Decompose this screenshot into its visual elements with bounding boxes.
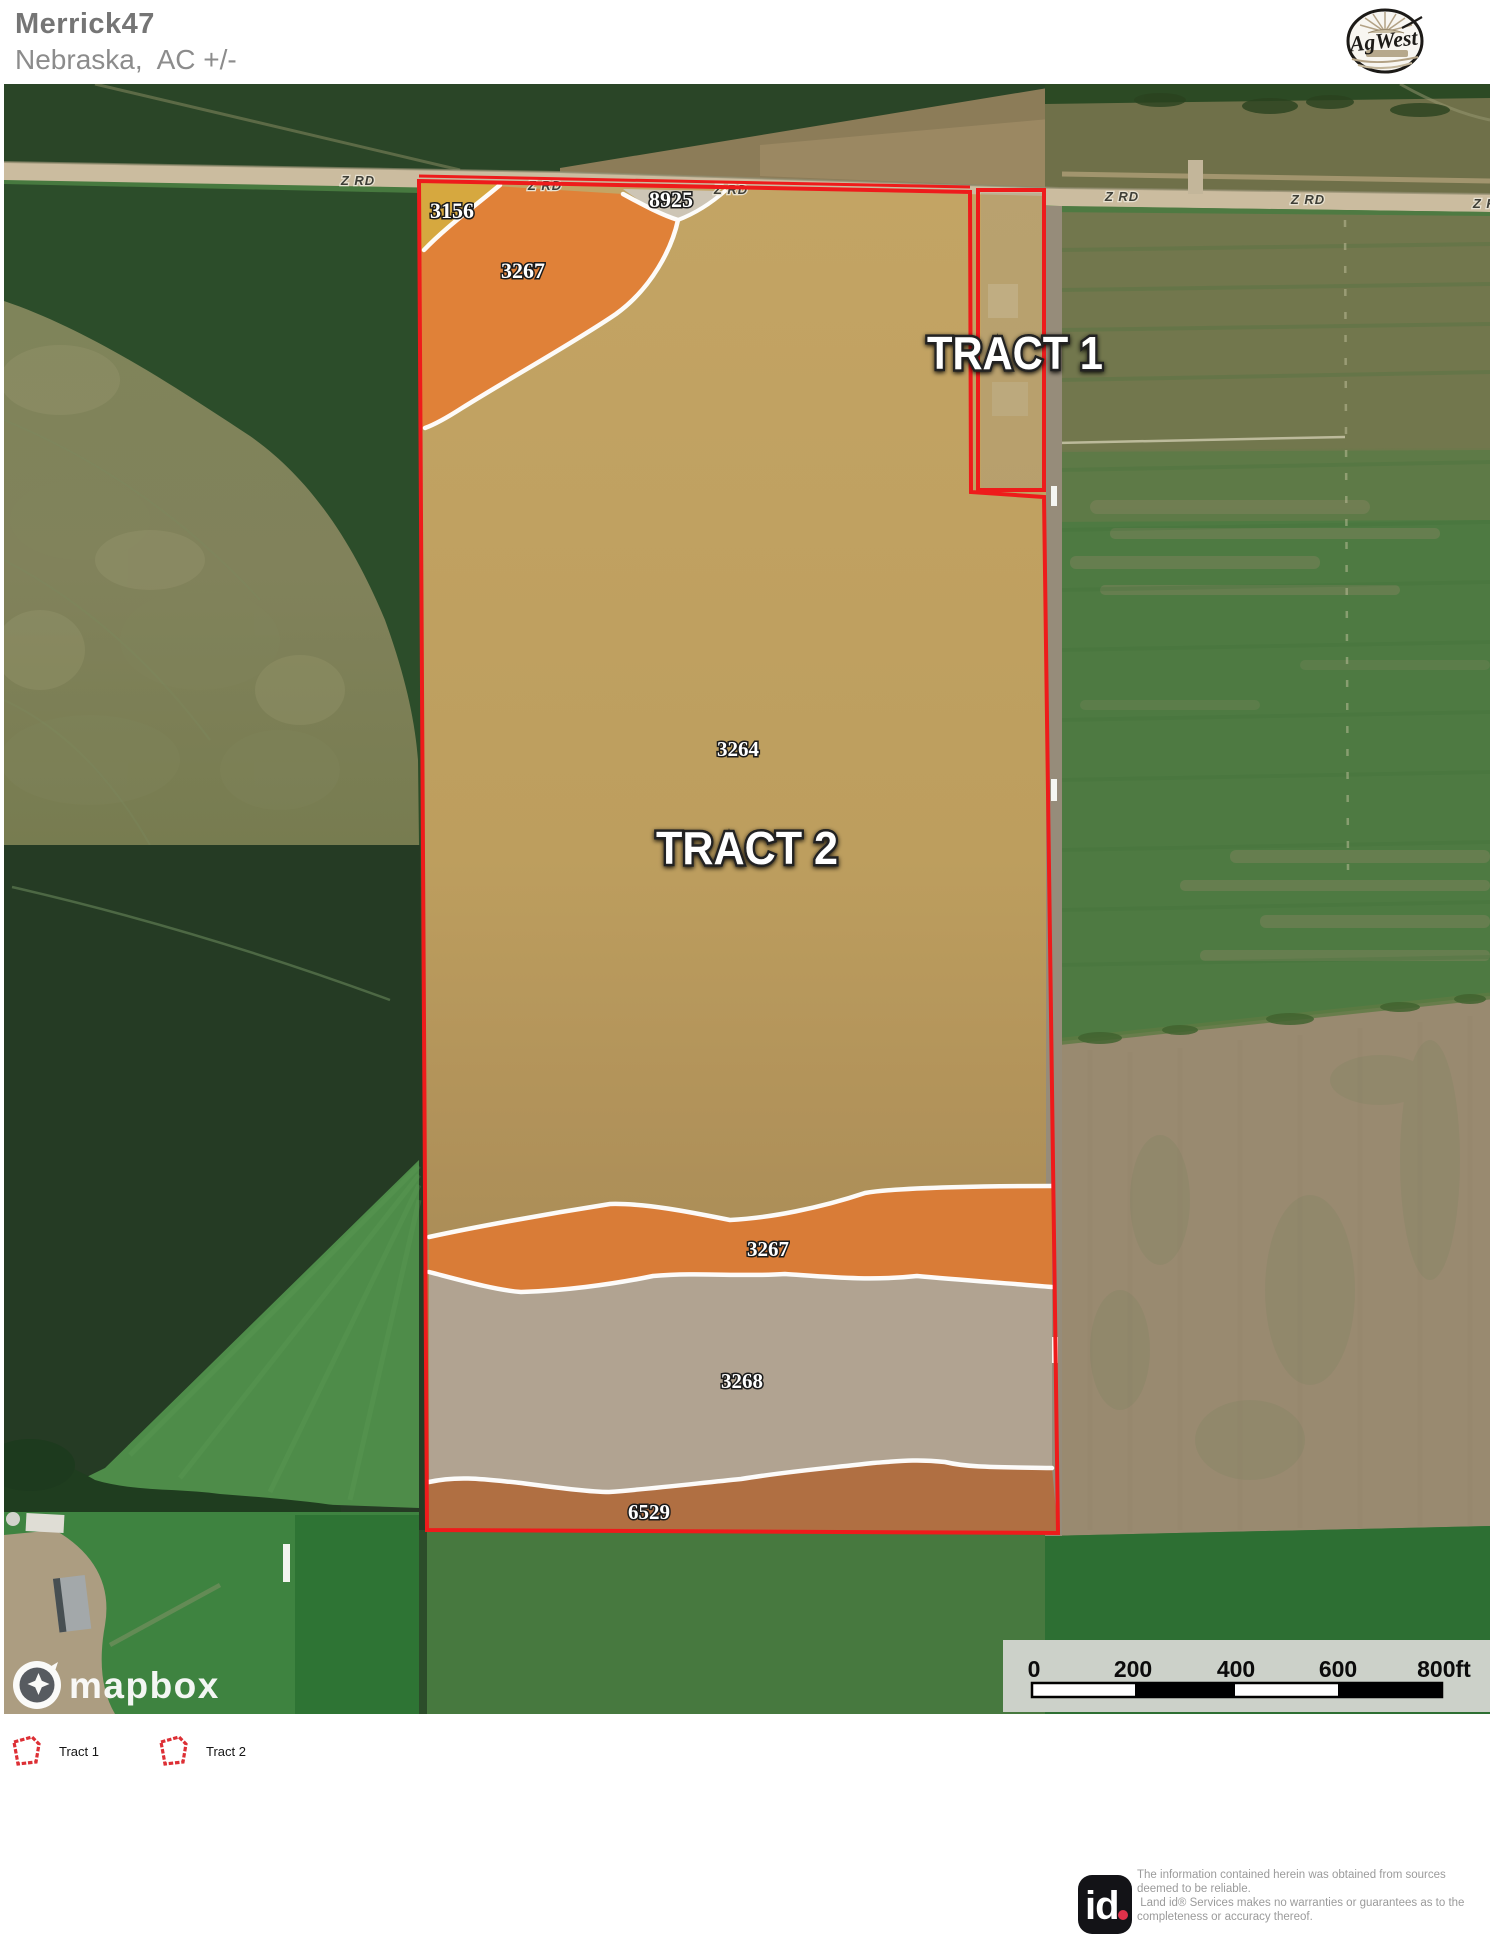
svg-text:id: id	[1085, 1884, 1119, 1928]
svg-text:3267: 3267	[501, 258, 545, 283]
svg-text:800ft: 800ft	[1417, 1656, 1471, 1682]
svg-text:TRACT 2: TRACT 2	[656, 822, 838, 874]
svg-text:mapbox: mapbox	[69, 1665, 220, 1706]
svg-text:400: 400	[1217, 1656, 1255, 1682]
svg-text:TRACT 1: TRACT 1	[927, 327, 1103, 379]
svg-text:6529: 6529	[628, 1500, 670, 1524]
svg-text:600: 600	[1319, 1656, 1357, 1682]
svg-text:Z RD: Z RD	[1472, 196, 1490, 211]
svg-text:3264: 3264	[717, 737, 760, 761]
svg-text:3268: 3268	[721, 1369, 763, 1393]
svg-text:0: 0	[1028, 1656, 1041, 1682]
svg-text:3267: 3267	[747, 1237, 789, 1261]
svg-text:Z RD: Z RD	[713, 182, 748, 197]
svg-text:3156: 3156	[430, 198, 474, 223]
svg-text:Z RD: Z RD	[340, 173, 375, 188]
svg-text:Z RD: Z RD	[1104, 189, 1139, 204]
svg-text:Z RD: Z RD	[1290, 192, 1325, 207]
svg-text:200: 200	[1114, 1656, 1152, 1682]
svg-text:8925: 8925	[649, 187, 693, 212]
